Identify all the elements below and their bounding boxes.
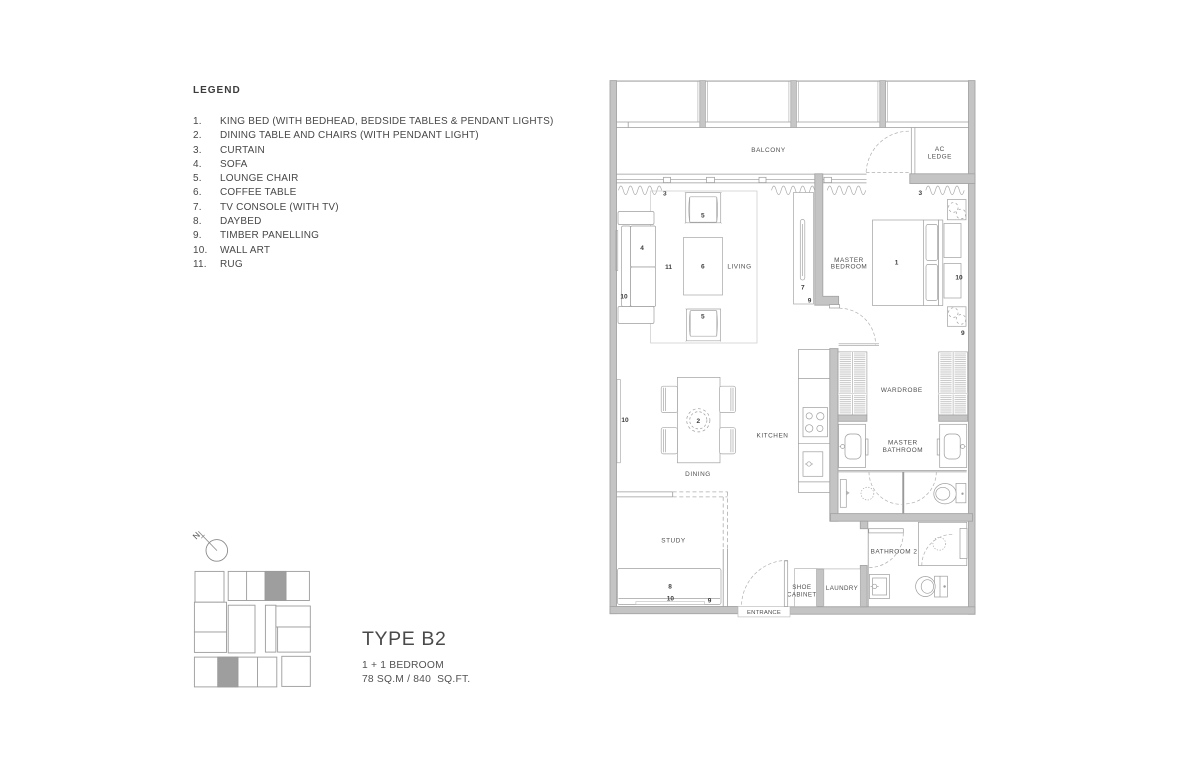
svg-text:4: 4 xyxy=(640,245,644,252)
svg-text:1: 1 xyxy=(895,260,899,267)
svg-text:5: 5 xyxy=(701,213,705,220)
svg-text:3: 3 xyxy=(663,190,667,197)
svg-text:WARDROBE: WARDROBE xyxy=(881,387,923,394)
svg-text:LAUNDRY: LAUNDRY xyxy=(826,585,858,592)
svg-text:BEDROOM: BEDROOM xyxy=(831,264,868,271)
svg-text:LEDGE: LEDGE xyxy=(928,154,952,161)
svg-text:9: 9 xyxy=(808,298,812,305)
svg-text:SHOE: SHOE xyxy=(792,584,811,591)
svg-text:10: 10 xyxy=(621,417,629,424)
svg-text:N: N xyxy=(191,530,202,541)
svg-text:5: 5 xyxy=(701,314,705,321)
svg-text:BALCONY: BALCONY xyxy=(751,147,786,154)
svg-text:3: 3 xyxy=(918,190,922,197)
svg-text:ENTRANCE: ENTRANCE xyxy=(747,610,781,616)
svg-text:10: 10 xyxy=(620,293,628,300)
svg-text:9: 9 xyxy=(961,330,965,337)
svg-text:MASTER: MASTER xyxy=(888,439,918,446)
svg-text:STUDY: STUDY xyxy=(661,537,686,544)
svg-text:CABINET: CABINET xyxy=(787,592,817,599)
svg-text:9: 9 xyxy=(708,597,712,604)
svg-text:11: 11 xyxy=(665,264,672,271)
svg-text:10: 10 xyxy=(955,275,963,282)
svg-text:BATHROOM: BATHROOM xyxy=(883,447,923,454)
svg-text:AC: AC xyxy=(935,146,945,153)
svg-text:BATHROOM 2: BATHROOM 2 xyxy=(871,549,918,556)
svg-text:7: 7 xyxy=(801,285,805,292)
svg-text:10: 10 xyxy=(667,596,675,603)
svg-text:6: 6 xyxy=(701,263,705,270)
svg-text:KITCHEN: KITCHEN xyxy=(757,432,789,439)
svg-text:DINING: DINING xyxy=(685,471,711,478)
svg-text:LIVING: LIVING xyxy=(727,264,751,271)
svg-text:2: 2 xyxy=(696,418,700,425)
svg-text:8: 8 xyxy=(668,583,672,590)
